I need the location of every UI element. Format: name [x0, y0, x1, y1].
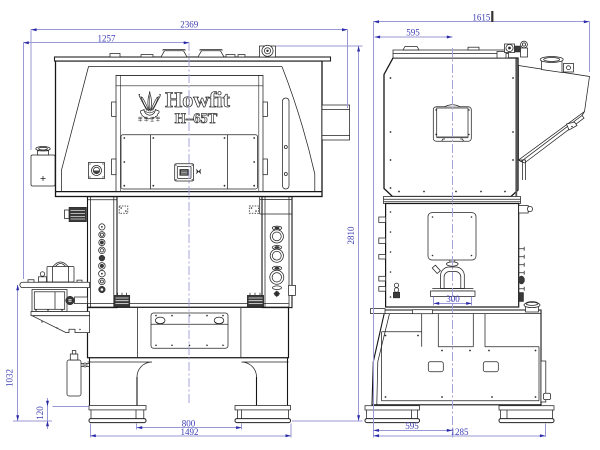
svg-text:2810: 2810 [346, 226, 356, 245]
svg-text:300: 300 [446, 294, 460, 304]
svg-text:595: 595 [405, 421, 419, 431]
svg-text:1285: 1285 [451, 427, 470, 437]
svg-text:1032: 1032 [5, 369, 15, 387]
svg-text:H–65T: H–65T [175, 111, 218, 127]
svg-text:1615: 1615 [472, 12, 491, 22]
svg-text:1492: 1492 [181, 427, 199, 437]
svg-text:1257: 1257 [98, 33, 117, 43]
svg-text:Howfit: Howfit [165, 87, 230, 112]
svg-text:2369: 2369 [180, 20, 199, 30]
svg-text:595: 595 [406, 28, 420, 38]
svg-text:120: 120 [35, 406, 45, 420]
